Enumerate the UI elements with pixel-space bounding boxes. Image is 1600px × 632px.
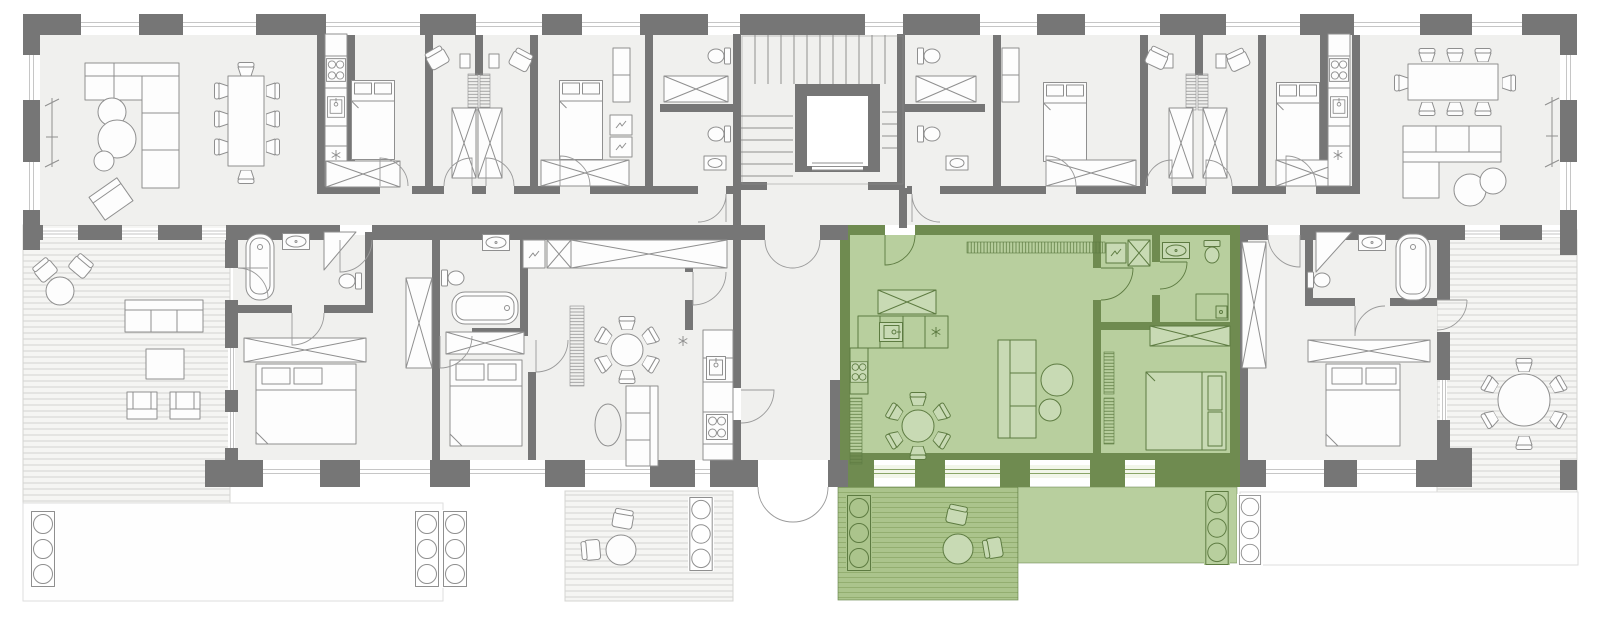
outdoor-table [146, 349, 184, 379]
garden-west [23, 503, 443, 601]
bathtub [1396, 234, 1430, 300]
desk [489, 54, 499, 68]
wardrobe [1203, 108, 1227, 178]
sink [1359, 235, 1386, 251]
bookshelf [1198, 74, 1208, 110]
highlighted-apartment[interactable] [838, 225, 1240, 600]
bookshelf [850, 398, 862, 464]
elevator [795, 84, 880, 172]
wardrobe [326, 161, 400, 187]
toilet [918, 126, 941, 142]
sink-icon [1330, 97, 1347, 118]
stove-icon [326, 59, 345, 82]
terrace-chair [612, 508, 635, 530]
bed [1277, 83, 1320, 162]
floorplan-canvas [0, 0, 1600, 632]
toilet [1308, 272, 1331, 288]
bath-toilet [1204, 241, 1220, 264]
mirror [610, 137, 632, 157]
bed [450, 360, 522, 446]
bathtub [246, 234, 274, 300]
desk [460, 54, 470, 68]
bookshelf [1104, 398, 1114, 444]
sink [946, 156, 968, 170]
bed [1044, 83, 1087, 162]
wardrobe [571, 240, 727, 268]
outdoor-chair [170, 392, 200, 419]
cabinet [547, 240, 571, 268]
wardrobe [244, 338, 366, 362]
sink [483, 235, 510, 251]
wardrobe [446, 332, 524, 354]
highlighted-terrace[interactable] [838, 487, 1237, 600]
terrace-chair [982, 537, 1004, 560]
stove-icon [707, 415, 728, 440]
coffee-table [1480, 168, 1506, 194]
bookshelf [570, 306, 584, 386]
bookshelf [967, 242, 1105, 253]
sink-icon [707, 357, 726, 380]
terrace-table [46, 277, 74, 305]
coffee-table [1039, 399, 1061, 421]
toilet [708, 126, 731, 142]
coffee-table [94, 151, 114, 171]
bookshelf [480, 74, 490, 110]
bookshelf [468, 74, 478, 110]
entrance [758, 487, 828, 522]
wardrobe [541, 160, 629, 186]
coffee-table [1041, 364, 1073, 396]
wardrobe [664, 76, 728, 102]
sofa [626, 386, 658, 466]
toilet [442, 270, 465, 286]
wardrobe [1308, 340, 1430, 362]
bed [1146, 372, 1226, 450]
toilet [918, 48, 941, 64]
mirror [610, 115, 632, 135]
terrace-table [606, 535, 636, 565]
floorplan-svg [0, 0, 1600, 632]
toilet [339, 273, 362, 289]
garden-east [1240, 492, 1578, 565]
sink [704, 156, 726, 170]
terrace-table [943, 534, 973, 564]
kitchen-east [1328, 34, 1350, 186]
hall-cabinet [1128, 240, 1150, 266]
bedroom-wardrobe [1150, 326, 1230, 346]
wardrobe [1046, 160, 1136, 186]
sink-icon [327, 97, 344, 118]
stove-icon [1329, 59, 1348, 82]
building [23, 14, 1578, 601]
washer [1106, 243, 1126, 263]
corridor [317, 193, 733, 225]
bed [1326, 364, 1400, 446]
wardrobe [916, 76, 976, 102]
bed [352, 81, 395, 160]
bath-sink [1163, 243, 1190, 259]
washer [523, 240, 545, 268]
wardrobe [1169, 108, 1193, 178]
terrace-chair [581, 539, 601, 561]
outdoor-chair [127, 392, 157, 419]
outdoor-sofa [125, 300, 203, 332]
sink [283, 234, 310, 250]
bookshelf [1186, 74, 1196, 110]
sofa [998, 340, 1036, 438]
bed [256, 364, 356, 444]
bathtub [452, 292, 518, 324]
bed [560, 81, 603, 160]
desk [1216, 54, 1226, 68]
wardrobe [1242, 242, 1266, 368]
bookshelf [1104, 352, 1114, 394]
toilet [708, 48, 731, 64]
wardrobe [478, 108, 502, 178]
entry-wardrobe [878, 290, 936, 314]
wardrobe [406, 278, 432, 368]
